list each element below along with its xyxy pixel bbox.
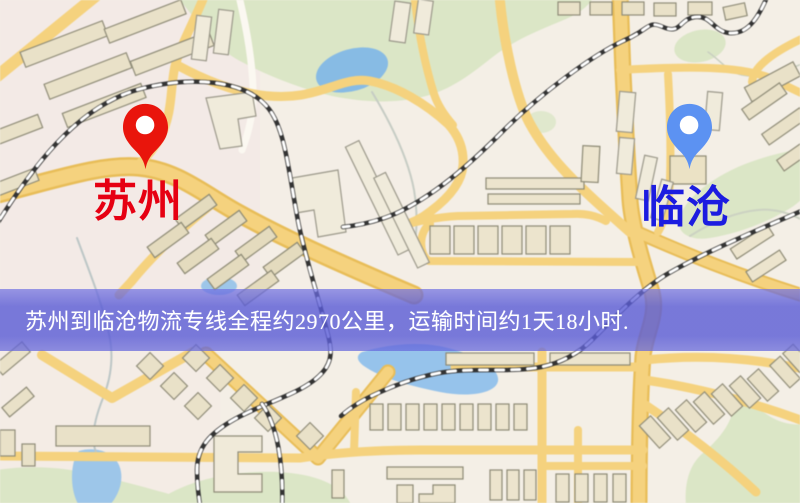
origin-label-text: 苏州 — [93, 177, 183, 226]
destination-label: 临沧 — [639, 178, 759, 236]
map-canvas[interactable]: 苏州 临沧 苏州到临沧物流专线全程约2970公里，运输时间约1天18小时. — [0, 0, 800, 503]
pin-hole — [680, 116, 699, 135]
base-map — [0, 0, 800, 503]
destination-label-text: 临沧 — [641, 183, 731, 232]
pin-body — [667, 104, 712, 169]
route-info-banner: 苏州到临沧物流专线全程约2970公里，运输时间约1天18小时. — [0, 289, 800, 351]
origin-pin-icon[interactable] — [119, 99, 172, 174]
pin-hole — [136, 116, 155, 135]
pin-body — [123, 104, 168, 169]
destination-pin-icon[interactable] — [663, 99, 716, 174]
route-info-text: 苏州到临沧物流专线全程约2970公里，运输时间约1天18小时. — [25, 304, 629, 336]
origin-label: 苏州 — [91, 172, 211, 230]
